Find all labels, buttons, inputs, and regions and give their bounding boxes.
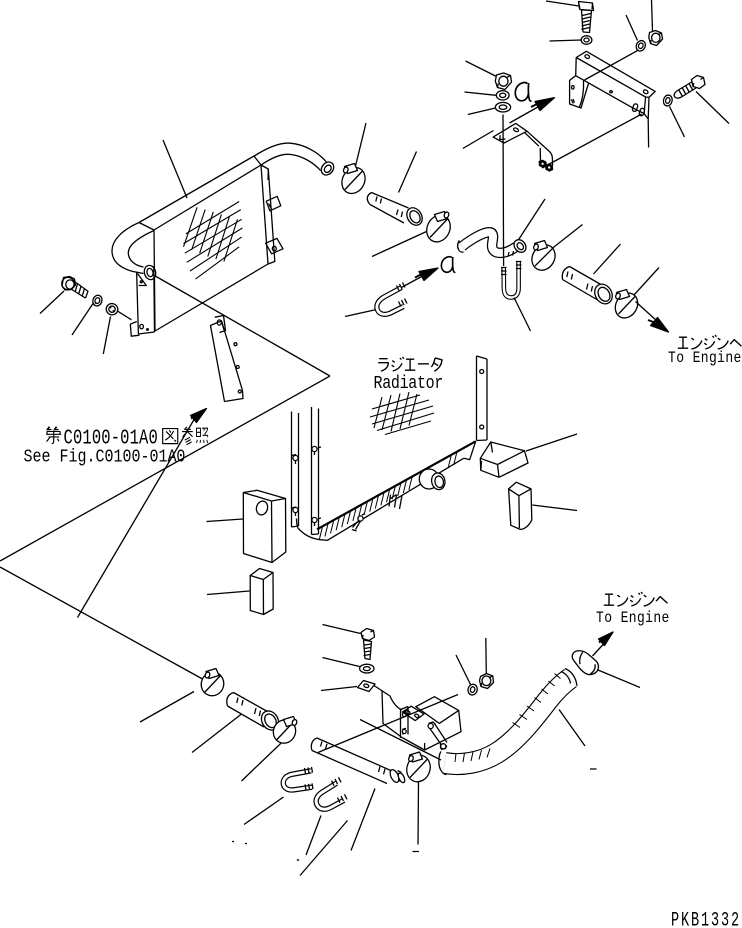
svg-text:To Engine: To Engine [668, 350, 742, 367]
svg-text:Radiator: Radiator [374, 374, 444, 395]
svg-text:See Fig.C0100-01A0: See Fig.C0100-01A0 [24, 447, 186, 468]
svg-text:PKB1332: PKB1332 [671, 910, 741, 928]
svg-text:To Engine: To Engine [596, 610, 670, 627]
